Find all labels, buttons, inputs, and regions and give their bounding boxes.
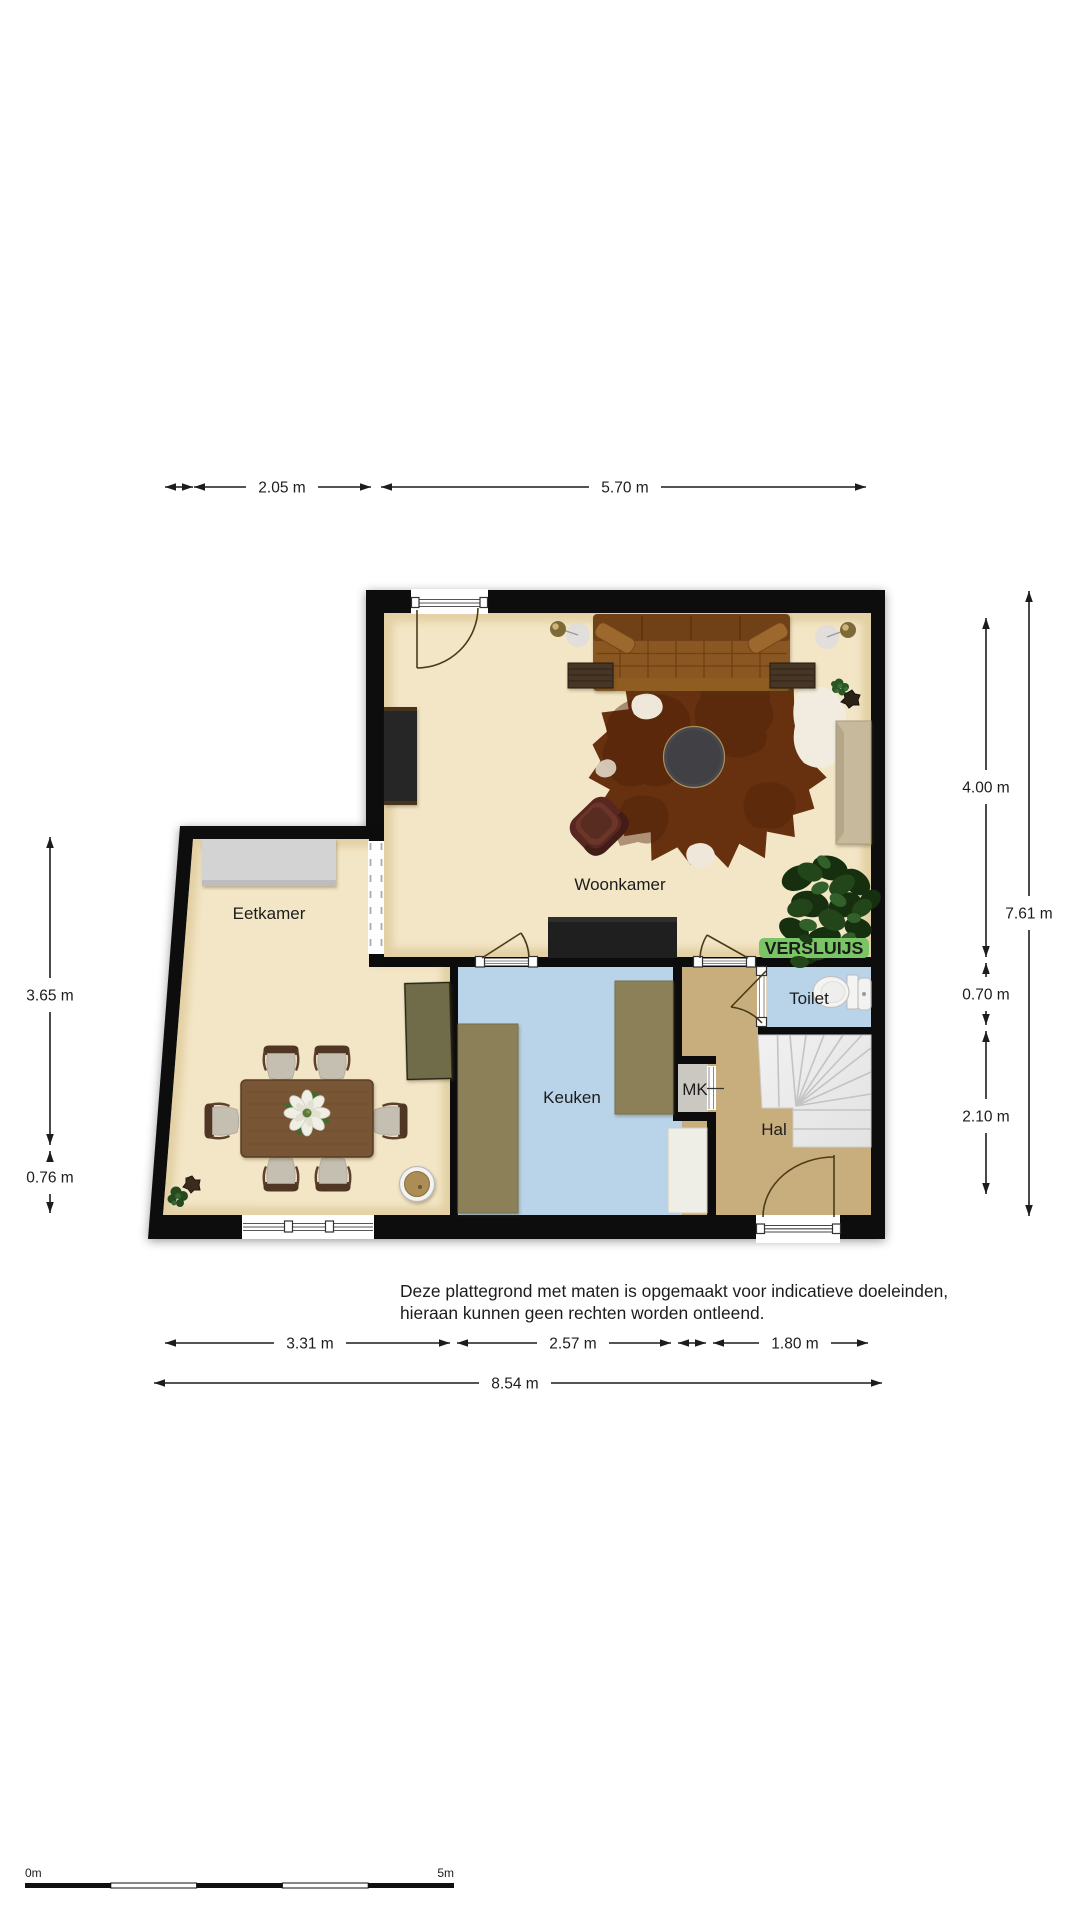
svg-text:Hal: Hal [761,1120,787,1139]
svg-text:8.54 m: 8.54 m [491,1376,538,1393]
svg-text:3.65 m: 3.65 m [26,988,73,1005]
svg-text:5m: 5m [437,1866,454,1880]
svg-text:1.80 m: 1.80 m [771,1336,818,1353]
svg-text:0.76 m: 0.76 m [26,1170,73,1187]
svg-text:Deze plattegrond met maten is: Deze plattegrond met maten is opgemaakt … [400,1281,948,1301]
svg-text:2.57 m: 2.57 m [549,1336,596,1353]
svg-text:2.10 m: 2.10 m [962,1109,1009,1126]
svg-text:3.31 m: 3.31 m [286,1336,333,1353]
svg-text:VERSLUIJS: VERSLUIJS [765,938,864,958]
svg-text:5.70 m: 5.70 m [601,480,648,497]
svg-text:0.70 m: 0.70 m [962,987,1009,1004]
svg-text:4.00 m: 4.00 m [962,780,1009,797]
svg-text:Keuken: Keuken [543,1088,601,1107]
svg-text:hieraan kunnen geen rechten wo: hieraan kunnen geen rechten worden ontle… [400,1303,765,1323]
svg-text:2.05 m: 2.05 m [258,480,305,497]
svg-text:MK: MK [682,1080,708,1099]
svg-text:Toilet: Toilet [789,989,829,1008]
svg-text:Woonkamer: Woonkamer [574,875,666,894]
svg-text:Eetkamer: Eetkamer [233,904,306,923]
svg-text:7.61 m: 7.61 m [1005,906,1052,923]
svg-text:0m: 0m [25,1866,42,1880]
